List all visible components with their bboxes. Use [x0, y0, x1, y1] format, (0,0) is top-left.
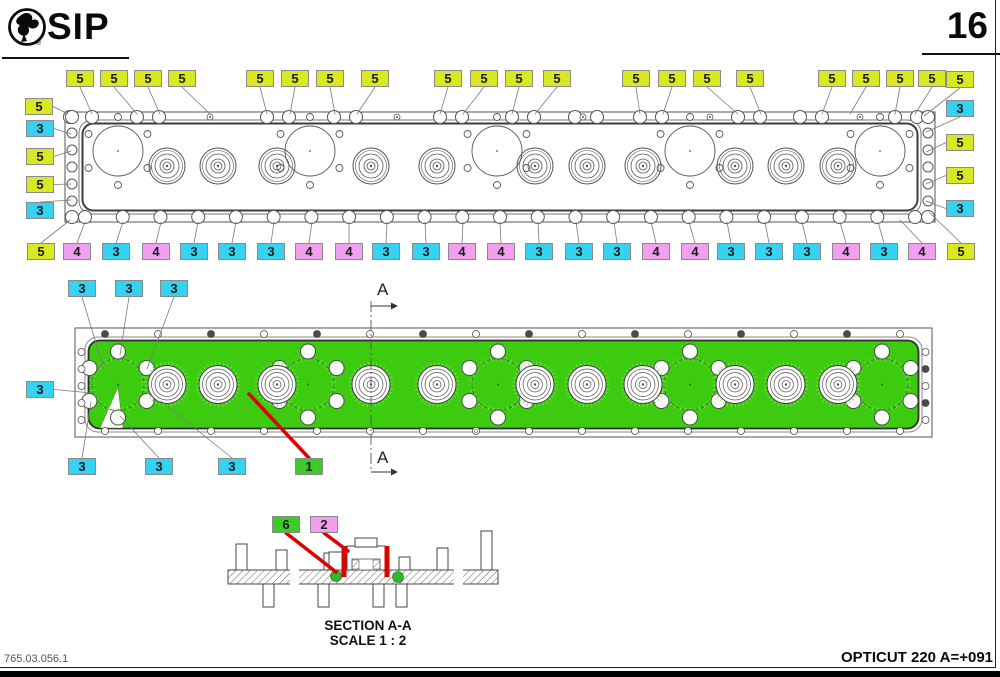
callout-item-3: 3: [870, 243, 898, 260]
callout-item-5: 5: [852, 70, 880, 87]
callout-item-3: 3: [603, 243, 631, 260]
callout-item-5: 5: [168, 70, 196, 87]
section-mark-a-bottom: A: [377, 448, 388, 468]
callout-item-5: 5: [505, 70, 533, 87]
callout-item-5: 5: [434, 70, 462, 87]
technical-drawing: [0, 0, 1000, 677]
callout-item-5: 5: [946, 167, 974, 184]
callout-item-3: 3: [372, 243, 400, 260]
callout-item-3: 3: [218, 458, 246, 475]
callout-item-5: 5: [543, 70, 571, 87]
callout-item-5: 5: [25, 98, 53, 115]
callout-item-3: 3: [717, 243, 745, 260]
callout-item-5: 5: [66, 70, 94, 87]
callout-item-3: 3: [257, 243, 285, 260]
callout-item-5: 5: [658, 70, 686, 87]
callout-item-3: 3: [946, 200, 974, 217]
callout-item-3: 3: [160, 280, 188, 297]
callout-item-5: 5: [622, 70, 650, 87]
page-bottom-bar: [0, 671, 1000, 677]
callout-item-4: 4: [295, 243, 323, 260]
callout-item-3: 3: [565, 243, 593, 260]
callout-item-3: 3: [755, 243, 783, 260]
callout-item-4: 4: [487, 243, 515, 260]
callout-item-3: 3: [26, 120, 54, 137]
section-scale: SCALE 1 : 2: [298, 633, 438, 648]
callout-item-3: 3: [793, 243, 821, 260]
callout-item-4: 4: [448, 243, 476, 260]
callout-item-5: 5: [470, 70, 498, 87]
section-mark-a-top: A: [377, 280, 388, 300]
callout-item-5: 5: [100, 70, 128, 87]
document-number: 765.03.056.1: [4, 653, 68, 665]
callout-item-4: 4: [832, 243, 860, 260]
callout-item-5: 5: [316, 70, 344, 87]
callout-item-4: 4: [642, 243, 670, 260]
callout-item-5: 5: [26, 148, 54, 165]
callout-item-4: 4: [335, 243, 363, 260]
callout-item-3: 3: [946, 100, 974, 117]
model-code: OPTICUT 220 A=+091: [700, 649, 993, 666]
callout-item-5: 5: [26, 176, 54, 193]
callout-item-3: 3: [68, 280, 96, 297]
section-title: SECTION A-A: [298, 618, 438, 633]
callout-item-3: 3: [115, 280, 143, 297]
callout-item-4: 4: [908, 243, 936, 260]
callout-item-5: 5: [27, 243, 55, 260]
callout-item-5: 5: [361, 70, 389, 87]
callout-item-3: 3: [68, 458, 96, 475]
footer-rule: [0, 667, 996, 668]
callout-item-5: 5: [134, 70, 162, 87]
callout-item-5: 5: [818, 70, 846, 87]
callout-item-5: 5: [281, 70, 309, 87]
callout-item-3: 3: [26, 202, 54, 219]
callout-item-5: 5: [947, 243, 975, 260]
callout-item-3: 3: [102, 243, 130, 260]
manual-page: ® SIP 16 A A SECTION A-A SCALE 1 : 2 765…: [0, 0, 1000, 677]
callout-item-3: 3: [26, 381, 54, 398]
callout-item-5: 5: [886, 70, 914, 87]
callout-item-3: 3: [180, 243, 208, 260]
callout-item-3: 3: [218, 243, 246, 260]
section-caption: SECTION A-A SCALE 1 : 2: [298, 618, 438, 648]
callout-item-5: 5: [946, 71, 974, 88]
callout-item-5: 5: [736, 70, 764, 87]
callout-item-3: 3: [412, 243, 440, 260]
callout-item-2: 2: [310, 516, 338, 533]
callout-item-5: 5: [946, 134, 974, 151]
callout-item-3: 3: [525, 243, 553, 260]
callout-item-5: 5: [918, 70, 946, 87]
callout-item-4: 4: [681, 243, 709, 260]
callout-item-4: 4: [142, 243, 170, 260]
callout-item-4: 4: [63, 243, 91, 260]
callout-item-6: 6: [272, 516, 300, 533]
callout-item-1: 1: [295, 458, 323, 475]
callout-item-3: 3: [145, 458, 173, 475]
callout-item-5: 5: [246, 70, 274, 87]
callout-item-5: 5: [693, 70, 721, 87]
